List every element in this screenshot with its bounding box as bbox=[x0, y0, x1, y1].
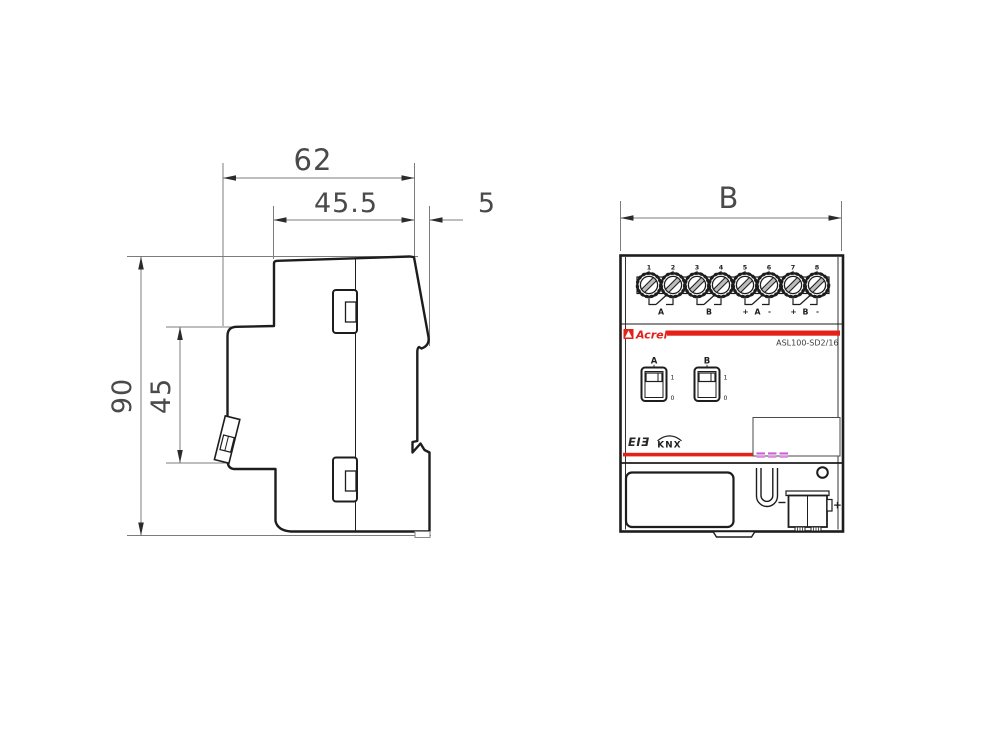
drawing-canvas: 62 45.5 5 90 45 bbox=[0, 0, 1000, 739]
dimension-height-clip: 45 bbox=[146, 327, 183, 463]
front-view: B 1 2 3 4 5 6 7 8 bbox=[621, 181, 844, 537]
side-fixing-tab-bottom bbox=[333, 458, 357, 502]
side-foot-tab bbox=[415, 532, 430, 538]
dimension-width-b: B bbox=[621, 181, 842, 251]
terminal-screw bbox=[709, 273, 732, 296]
terminal-screw bbox=[661, 273, 684, 296]
terminal-number: 2 bbox=[671, 264, 675, 272]
dim-45-5-label: 45.5 bbox=[314, 188, 378, 219]
terminal-number: 6 bbox=[767, 264, 772, 272]
bottom-tab bbox=[713, 532, 755, 538]
group-label-a: A bbox=[658, 308, 664, 317]
programming-button bbox=[817, 467, 828, 478]
side-fixing-tab-top bbox=[333, 290, 357, 333]
dimension-din-depth: 5 bbox=[430, 188, 497, 223]
terminal-number: 8 bbox=[815, 264, 820, 272]
terminal-number: 3 bbox=[695, 264, 699, 272]
dim-5-label: 5 bbox=[478, 188, 496, 219]
group-minus: - bbox=[768, 307, 771, 316]
brand-red-bar bbox=[667, 331, 840, 336]
terminal-number: 4 bbox=[719, 264, 724, 272]
terminal-screw bbox=[733, 273, 756, 296]
dimension-width-total: 62 bbox=[223, 143, 415, 181]
switch-a-body bbox=[642, 368, 667, 402]
switch-b-on: 1 bbox=[724, 375, 728, 382]
bus-connector-plus: + bbox=[833, 500, 842, 512]
group-minus: - bbox=[816, 307, 819, 316]
terminal-number: 1 bbox=[647, 264, 651, 272]
terminal-screw bbox=[781, 273, 804, 296]
dim-45-label: 45 bbox=[146, 378, 177, 414]
lower-cover-plate bbox=[626, 473, 734, 528]
switch-a-on: 1 bbox=[671, 375, 675, 382]
group-plus: + bbox=[790, 307, 796, 316]
terminal-screw bbox=[805, 273, 828, 296]
dimension-width-front: 45.5 bbox=[274, 188, 415, 223]
group-label-b: B bbox=[706, 308, 712, 317]
brand-text: Acrel bbox=[635, 329, 668, 342]
bus-connector-side-tab bbox=[827, 500, 832, 512]
dim-62-label: 62 bbox=[294, 143, 333, 177]
dim-b-label: B bbox=[719, 181, 740, 215]
dim-90-label: 90 bbox=[107, 378, 138, 414]
terminal-screw bbox=[637, 273, 660, 296]
switch-b-body bbox=[695, 368, 720, 402]
terminal-number: 7 bbox=[791, 264, 795, 272]
dimension-height-total: 90 bbox=[107, 257, 144, 536]
eib-logo: EIƎ bbox=[628, 435, 650, 449]
model-text: ASL100-SD2/16 bbox=[776, 339, 838, 348]
side-view: 62 45.5 5 90 45 bbox=[107, 143, 496, 538]
terminal-screw bbox=[685, 273, 708, 296]
side-profile-outline bbox=[228, 257, 430, 532]
group-plus: + bbox=[742, 307, 748, 316]
switch-b-off: 0 bbox=[724, 395, 728, 402]
technical-drawing-page: 62 45.5 5 90 45 bbox=[0, 0, 1000, 739]
knx-logo: KNX bbox=[657, 441, 682, 451]
switch-a-off: 0 bbox=[671, 395, 675, 402]
group-label-analog-b: B bbox=[803, 308, 809, 317]
group-label-analog-a: A bbox=[754, 308, 760, 317]
label-window bbox=[753, 418, 840, 457]
terminal-number: 5 bbox=[743, 264, 747, 272]
panel-red-stripe bbox=[623, 453, 753, 457]
terminal-screw bbox=[757, 273, 780, 296]
